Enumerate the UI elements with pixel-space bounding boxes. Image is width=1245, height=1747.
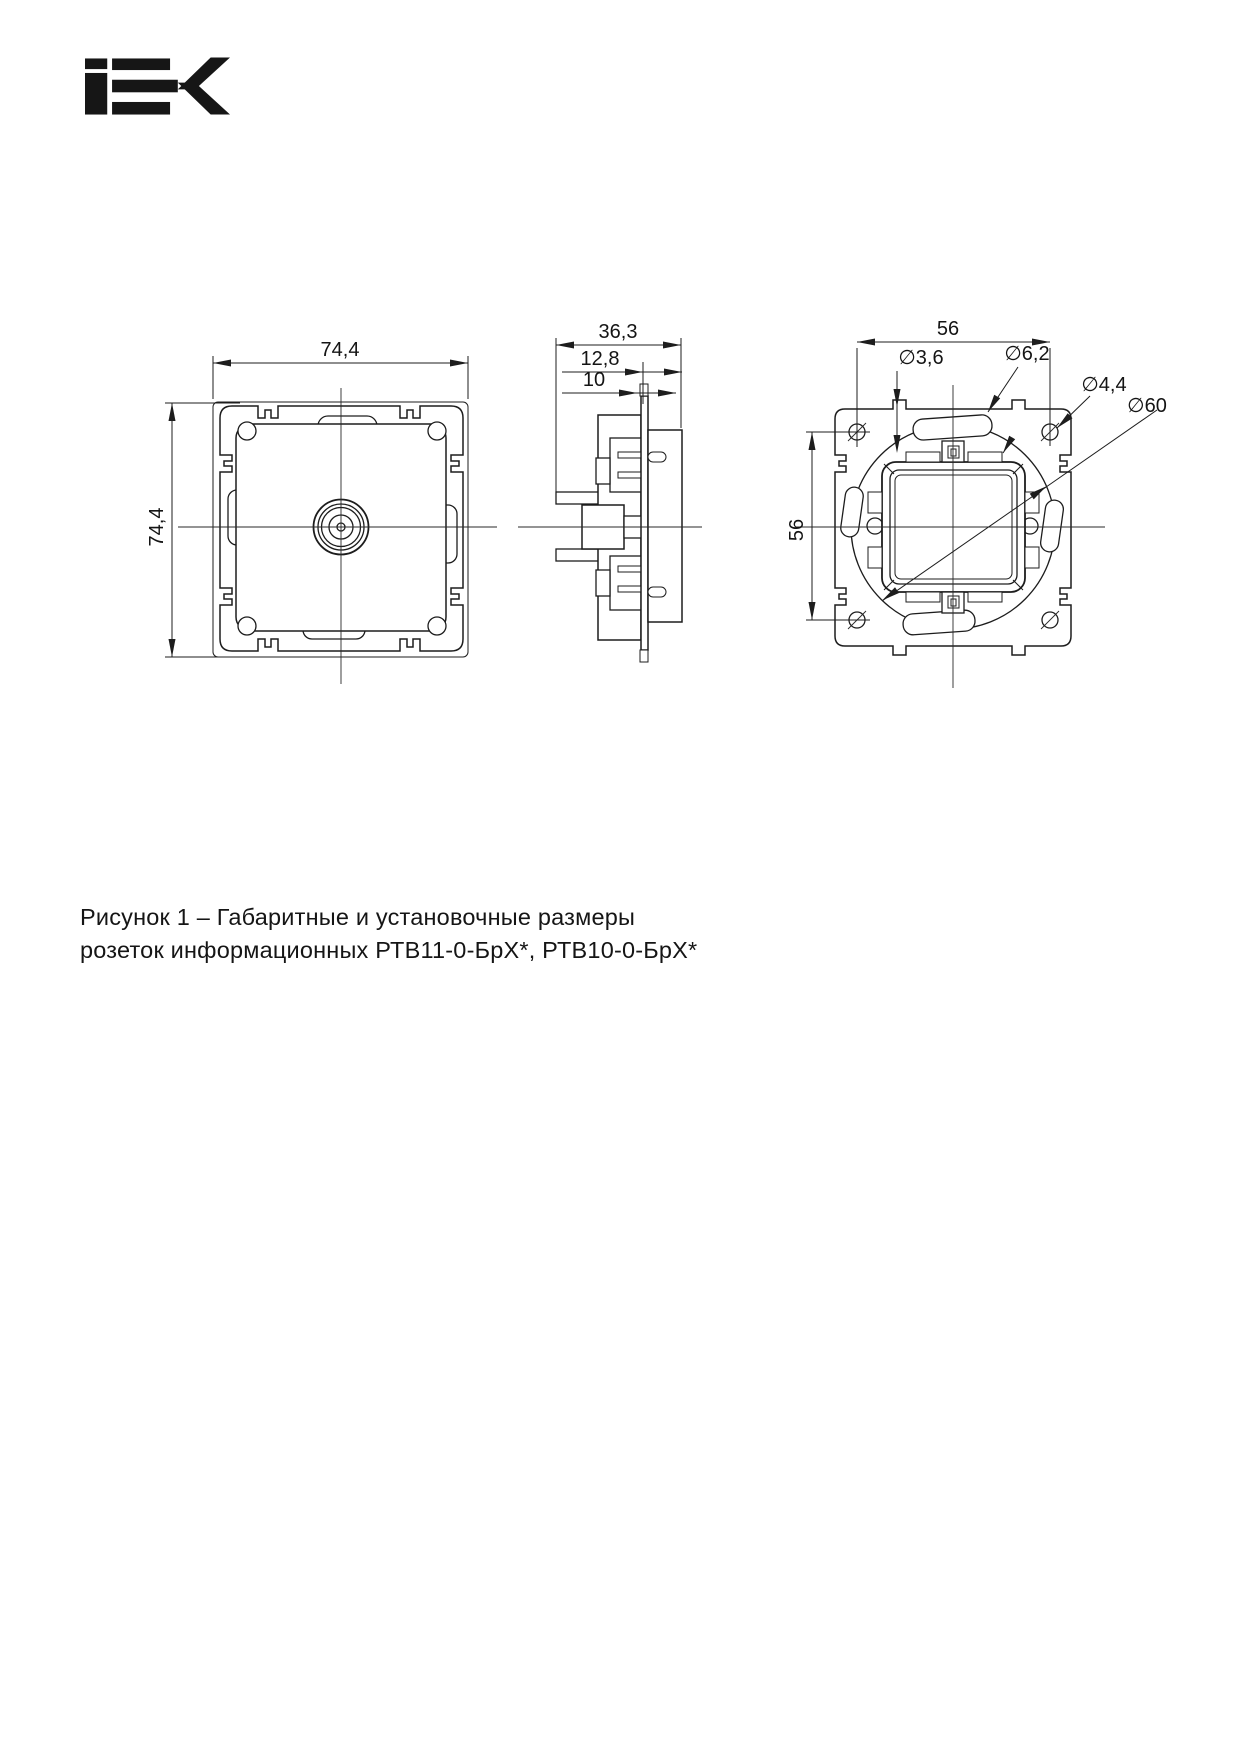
side-terminal-top-slot2 [618,472,641,478]
dim-rear-spacing-h-label: 56 [937,318,959,340]
dim-rear-screw-hole-label: ∅4,4 [1081,374,1126,396]
front-corner-hole-tl [238,422,256,440]
dim-side-total-depth-label: 36,3 [599,321,638,343]
figure-caption-line2: розеток информационных РТВ11-0-БрХ*, РТВ… [80,934,720,967]
side-pin-top [648,452,666,462]
side-terminal-bottom-slot2 [618,586,641,592]
dim-front-height-label: 74,4 [146,508,168,547]
dim-rear-claw-slot-label: ∅6,2 [1004,343,1049,365]
dim-rear-mount-circle-label: ∅60 [1127,395,1167,417]
front-corner-hole-bl [238,617,256,635]
dim-front-width-label: 74,4 [321,339,360,361]
figure-caption-line1: Рисунок 1 – Габаритные и установочные ра… [80,901,720,934]
side-terminal-bottom [610,556,641,610]
figure-caption: Рисунок 1 – Габаритные и установочные ра… [80,901,720,967]
side-flange-tab-top [640,384,648,396]
rear-claw-slot-bottom [902,610,975,636]
dim-side-plate-depth-label: 10 [583,369,605,391]
dim-side-front-depth-label: 12,8 [581,348,620,370]
side-claw-bottom [556,549,600,561]
side-terminal-top-slot1 [618,452,641,458]
side-flange-plate [641,396,648,650]
side-terminal-top-step [596,458,610,484]
side-terminal-bottom-slot1 [618,566,641,572]
dimension-drawings: 74,4 74,4 [0,0,1245,1000]
side-flange-tab-bottom [640,650,648,662]
side-terminal-bottom-step [596,570,610,596]
front-corner-hole-br [428,617,446,635]
dim-rear-spacing-v-label: 56 [786,519,808,541]
dim-rear-latch-hole-label: ∅3,6 [898,347,943,369]
document-page: 74,4 74,4 [0,0,1245,1747]
side-terminal-top [610,438,641,492]
front-view-drawing: 74,4 74,4 [146,339,497,684]
side-view-drawing: 36,3 12,8 10 [518,321,702,662]
side-pin-bottom [648,587,666,597]
rear-side-hole-left [867,518,883,534]
rear-view-drawing: 56 56 ∅3,6 ∅6,2 ∅4,4 [786,318,1167,688]
front-corner-hole-tr [428,422,446,440]
